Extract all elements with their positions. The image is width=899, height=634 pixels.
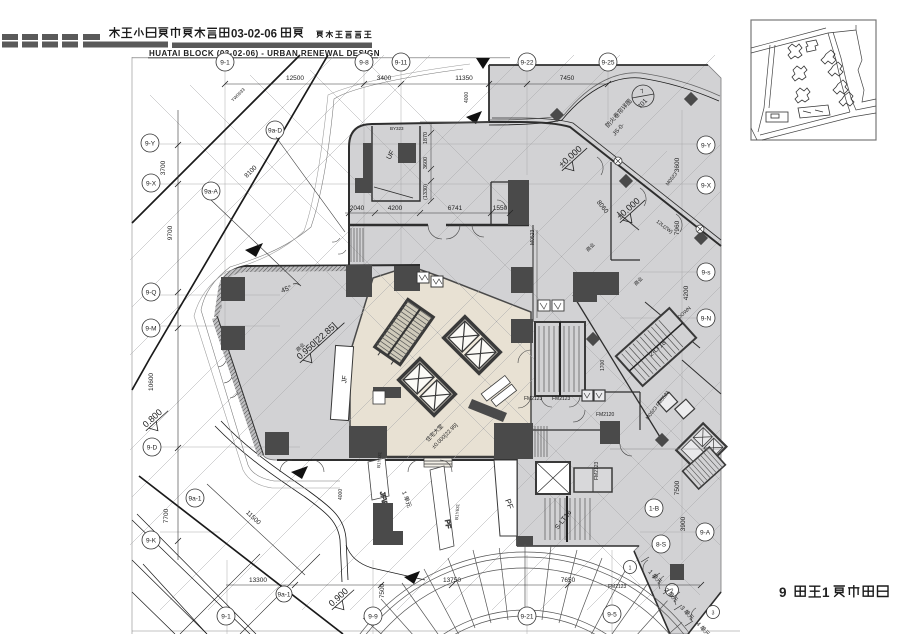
svg-text:9-22: 9-22 [520, 60, 533, 67]
svg-text:FM2123: FM2123 [524, 396, 543, 402]
svg-text:9a-1: 9a-1 [277, 592, 290, 599]
svg-text:6741: 6741 [448, 205, 463, 212]
svg-text:13750: 13750 [443, 577, 461, 584]
svg-text:9-M: 9-M [145, 326, 156, 333]
svg-text:4000: 4000 [338, 489, 344, 500]
svg-text:9-25: 9-25 [601, 60, 614, 67]
svg-text:M0523: M0523 [530, 229, 536, 245]
svg-text:9-5: 9-5 [607, 612, 617, 619]
svg-text:7960: 7960 [674, 220, 681, 235]
svg-text:9a-1: 9a-1 [188, 496, 201, 503]
svg-text:9-X: 9-X [146, 181, 157, 188]
svg-text:11500: 11500 [244, 509, 262, 526]
svg-text:9: 9 [779, 585, 787, 600]
svg-text:YW0633: YW0633 [230, 87, 246, 103]
svg-text:9-X: 9-X [701, 183, 712, 190]
svg-text:1-B: 1-B [649, 506, 659, 513]
svg-text:9-D: 9-D [147, 445, 158, 452]
svg-text:9-8: 9-8 [359, 60, 369, 67]
svg-text:4200: 4200 [388, 205, 403, 212]
svg-text:9-Q: 9-Q [146, 290, 157, 297]
svg-text:7500: 7500 [674, 480, 681, 495]
svg-text:3700: 3700 [160, 160, 167, 175]
svg-text:FM2123: FM2123 [552, 396, 571, 402]
svg-text:11350: 11350 [455, 75, 473, 82]
svg-text:9-K: 9-K [146, 538, 157, 545]
svg-text:9-s: 9-s [701, 270, 711, 277]
svg-text:9-1: 9-1 [220, 60, 230, 67]
svg-text:1 单元: 1 单元 [400, 490, 413, 509]
svg-text:7450: 7450 [560, 75, 575, 82]
svg-text:9-Y: 9-Y [145, 141, 156, 148]
svg-text:9-9: 9-9 [368, 614, 378, 621]
svg-text:3900: 3900 [680, 516, 687, 531]
svg-text:3600: 3600 [674, 157, 681, 172]
svg-text:8-S: 8-S [656, 542, 667, 549]
svg-text:0.900: 0.900 [327, 586, 350, 609]
svg-text:FM2123: FM2123 [608, 584, 627, 590]
svg-text:03-02-06: 03-02-06 [231, 29, 277, 41]
svg-text:9-N: 9-N [701, 316, 712, 323]
svg-text:1: 1 [822, 585, 830, 600]
svg-text:(1330): (1330) [423, 184, 429, 200]
svg-text:9700: 9700 [167, 225, 174, 240]
svg-text:3: 3 [712, 611, 715, 617]
svg-text:HUATAI BLOCK (03-02-06) - UR: HUATAI BLOCK (03-02-06) - URBAN RENEWAL … [149, 49, 380, 58]
svg-text:4000: 4000 [464, 92, 470, 103]
svg-text:4 单元: 4 单元 [695, 620, 712, 634]
svg-text:10600: 10600 [148, 373, 155, 391]
svg-text:3400: 3400 [377, 75, 392, 82]
svg-text:12500: 12500 [286, 75, 304, 82]
svg-text:0.800: 0.800 [141, 407, 164, 430]
svg-text:1870: 1870 [423, 132, 429, 144]
svg-text:JF: JF [341, 375, 349, 384]
svg-text:9-A: 9-A [700, 530, 711, 537]
svg-text:9-1: 9-1 [221, 614, 231, 621]
svg-text:B1Y631: B1Y631 [454, 503, 460, 520]
svg-text:1: 1 [629, 566, 632, 572]
svg-text:4200: 4200 [683, 285, 690, 300]
svg-text:9-21: 9-21 [520, 614, 533, 621]
svg-text:BY323: BY323 [390, 126, 404, 131]
svg-text:7650: 7650 [561, 577, 576, 584]
svg-text:9a-D: 9a-D [268, 128, 282, 135]
svg-text:FM2120: FM2120 [596, 412, 615, 418]
svg-text:9-Y: 9-Y [701, 143, 712, 150]
svg-text:13300: 13300 [249, 577, 267, 584]
svg-text:2040: 2040 [350, 205, 365, 212]
svg-text:3600: 3600 [423, 157, 429, 169]
svg-text:9a-A: 9a-A [204, 189, 218, 196]
svg-text:9-11: 9-11 [395, 60, 408, 67]
svg-text:1700: 1700 [600, 360, 606, 371]
svg-text:FM2123: FM2123 [594, 461, 600, 480]
svg-text:7700: 7700 [163, 508, 170, 523]
